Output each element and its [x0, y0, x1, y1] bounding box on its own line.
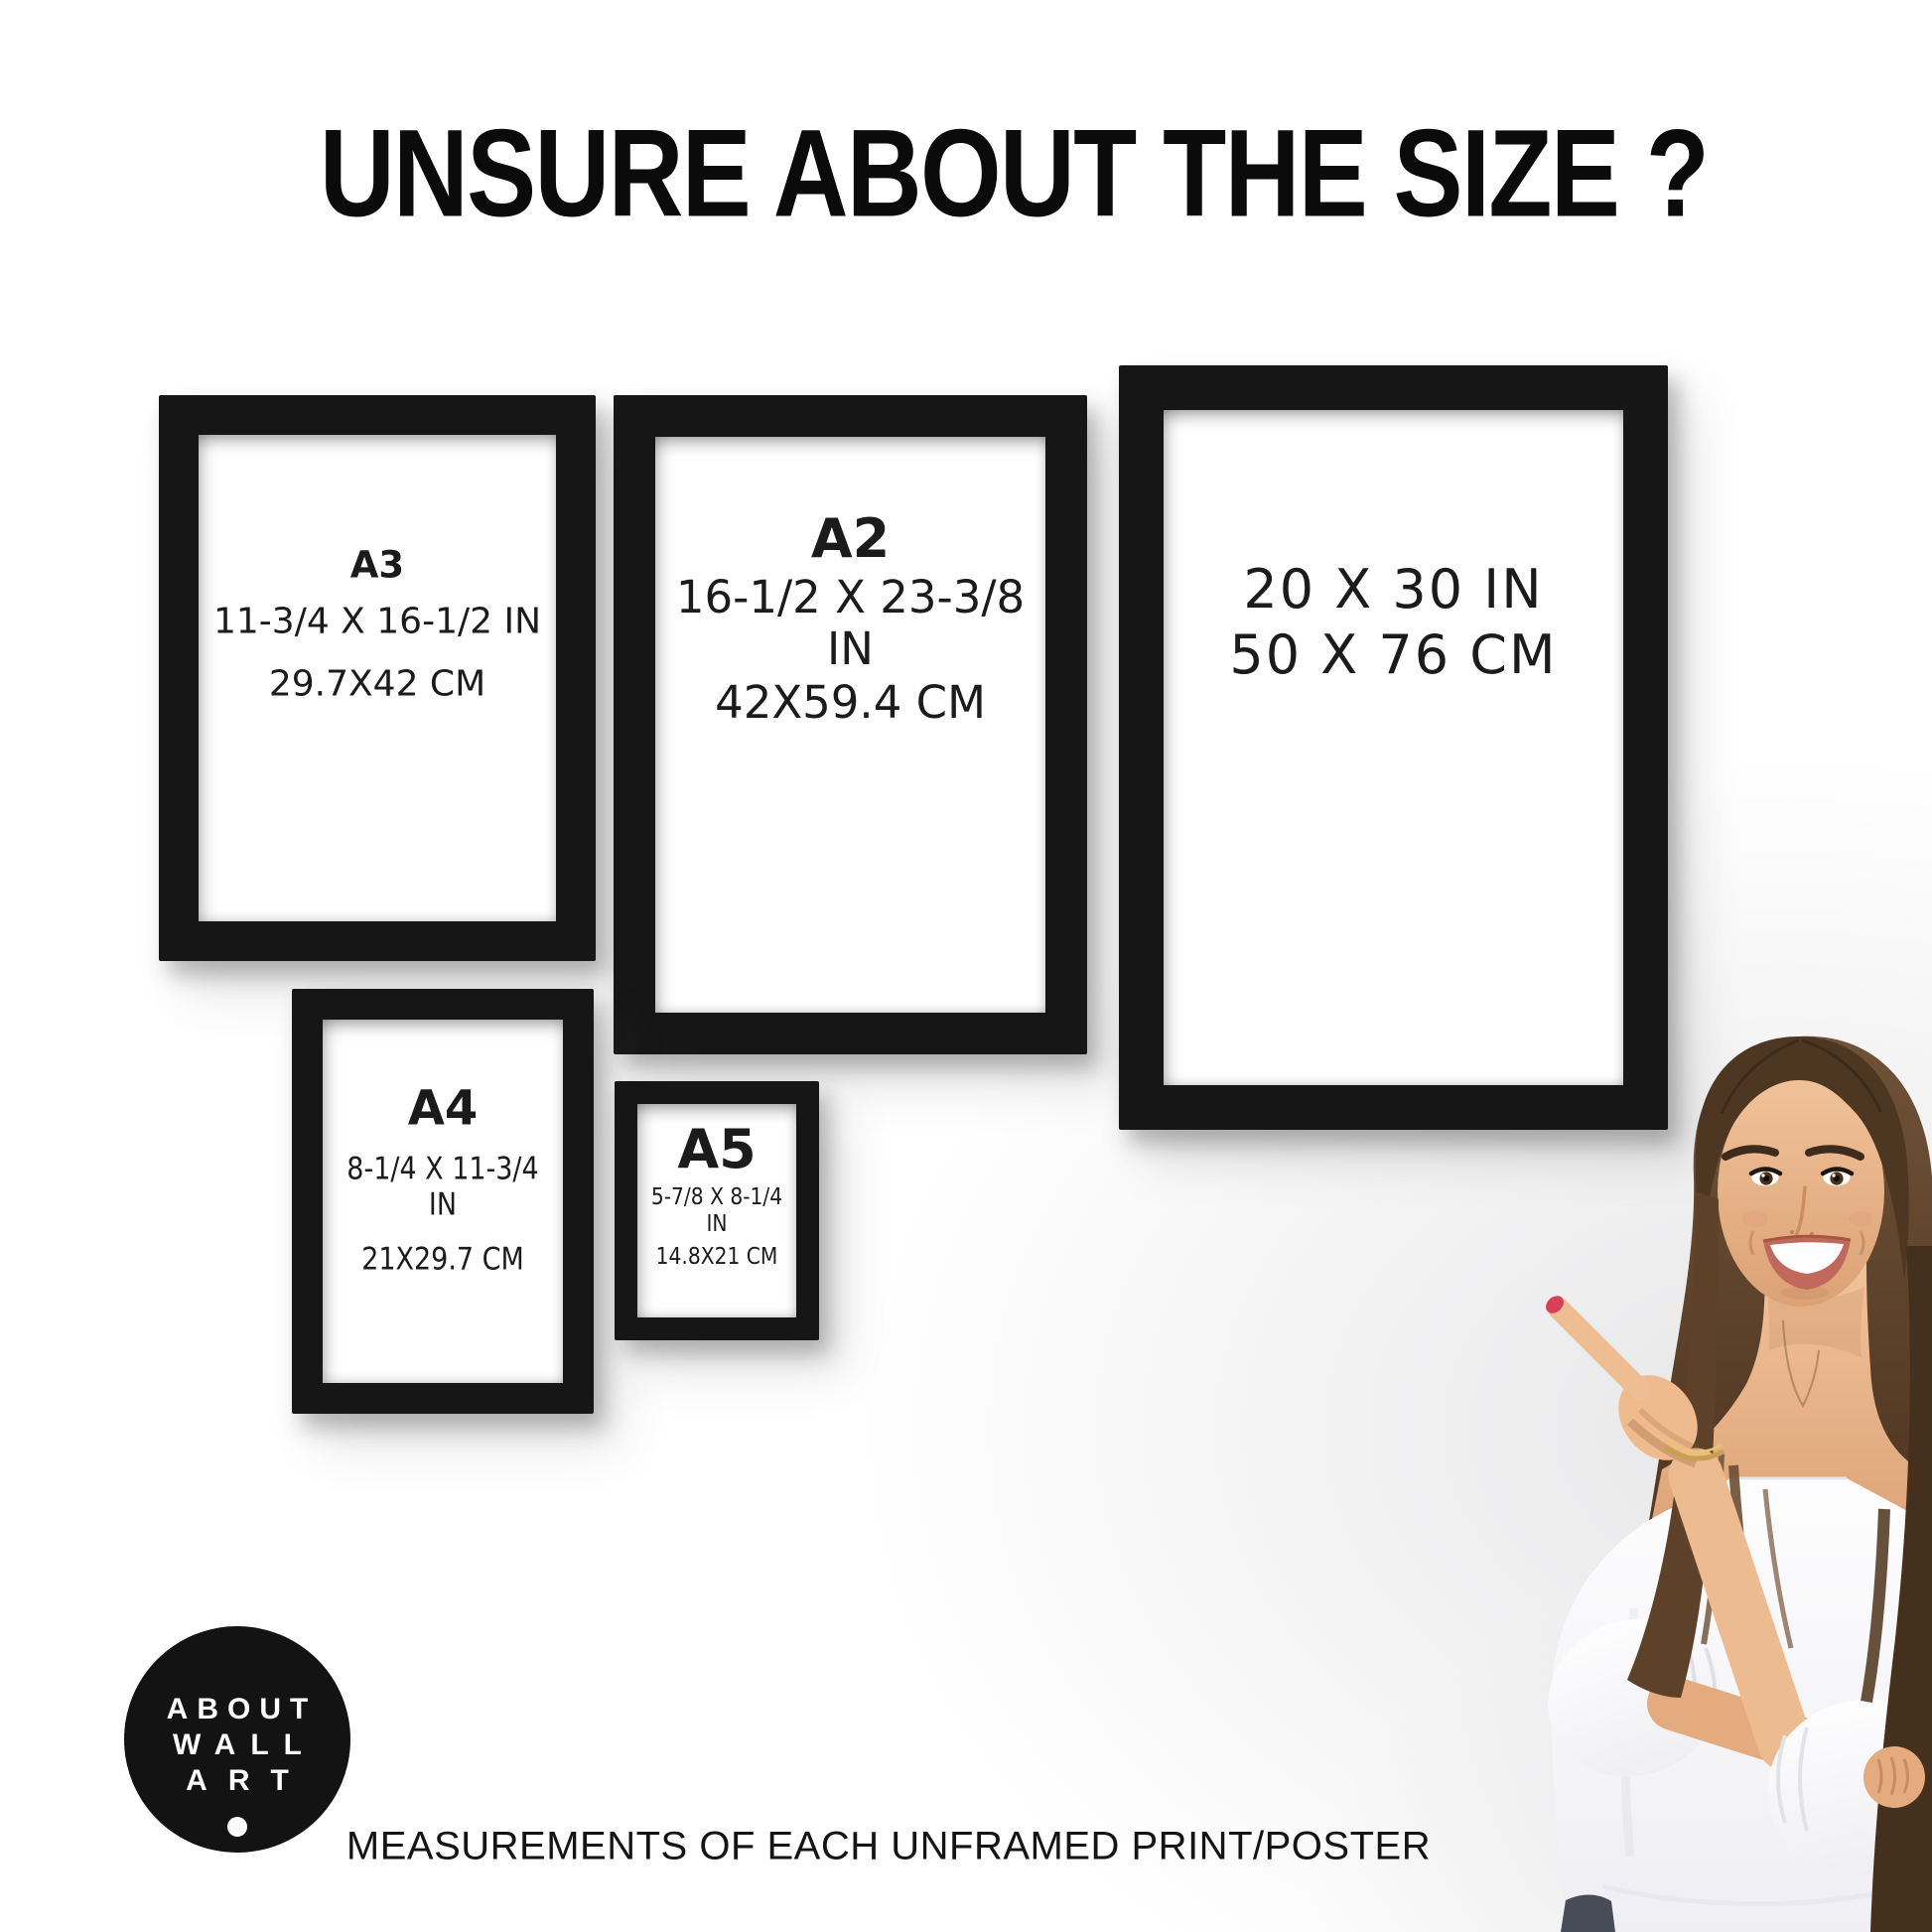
frame-a3-size-text: A3 11-3/4 X 16-1/2 IN 29.7X42 CM [199, 544, 556, 704]
brand-logo-text: ABOUT WALL ART [124, 1692, 350, 1799]
frame-a3-cm: 29.7X42 CM [199, 663, 556, 704]
frame-a2-inches: 16-1/2 X 23-3/8 IN [655, 572, 1045, 675]
brand-logo-line-2: WALL [124, 1727, 350, 1763]
woman-jeans [1561, 1894, 1615, 1932]
frame-a5-cm: 14.8X21 CM [647, 1244, 787, 1270]
frame-20x30-size-text: 20 X 30 IN 50 X 76 CM [1164, 559, 1623, 686]
woman-gripping-hand [1863, 1746, 1925, 1808]
frame-20x30-inches: 20 X 30 IN [1164, 559, 1623, 621]
frame-a5-label: A5 [637, 1119, 796, 1180]
frame-a3-mat: A3 11-3/4 X 16-1/2 IN 29.7X42 CM [199, 435, 556, 921]
woman-index-finger [1559, 1309, 1640, 1390]
frame-20x30-mat: 20 X 30 IN 50 X 76 CM [1164, 410, 1623, 1085]
frame-a4: A4 8-1/4 X 11-3/4 IN 21X29.7 CM [292, 989, 594, 1414]
frame-a5-inches: 5-7/8 X 8-1/4 IN [647, 1184, 787, 1237]
frame-a2: A2 16-1/2 X 23-3/8 IN 42X59.4 CM [614, 395, 1087, 1054]
frame-a3-inches: 11-3/4 X 16-1/2 IN [199, 601, 556, 641]
frame-a4-cm: 21X29.7 CM [339, 1242, 548, 1278]
brand-logo-line-1: ABOUT [124, 1692, 350, 1727]
size-guide-poster: UNSURE ABOUT THE SIZE ? A3 11-3/4 X 16-1… [0, 0, 1932, 1932]
frame-a4-inches: 8-1/4 X 11-3/4 IN [339, 1153, 548, 1223]
frame-a5-mat: A5 5-7/8 X 8-1/4 IN 14.8X21 CM [637, 1104, 796, 1317]
frame-a5: A5 5-7/8 X 8-1/4 IN 14.8X21 CM [615, 1081, 819, 1340]
page-title: UNSURE ABOUT THE SIZE ? [320, 103, 1708, 245]
frame-a2-cm: 42X59.4 CM [655, 677, 1045, 729]
brand-logo-line-3: ART [124, 1763, 350, 1799]
frame-a2-label: A2 [655, 508, 1045, 570]
frame-a5-size-text: A5 5-7/8 X 8-1/4 IN 14.8X21 CM [637, 1119, 796, 1270]
frame-a4-mat: A4 8-1/4 X 11-3/4 IN 21X29.7 CM [323, 1020, 563, 1383]
brand-logo: ABOUT WALL ART [124, 1626, 350, 1853]
frame-a4-size-text: A4 8-1/4 X 11-3/4 IN 21X29.7 CM [323, 1081, 563, 1277]
footer-caption: MEASUREMENTS OF EACH UNFRAMED PRINT/POST… [346, 1825, 1431, 1869]
frame-a2-mat: A2 16-1/2 X 23-3/8 IN 42X59.4 CM [655, 437, 1045, 1013]
frame-a3: A3 11-3/4 X 16-1/2 IN 29.7X42 CM [159, 395, 596, 961]
woman-photo [1436, 993, 1932, 1932]
frame-a4-label: A4 [323, 1081, 563, 1136]
frame-20x30-cm: 50 X 76 CM [1164, 624, 1623, 686]
frame-a2-size-text: A2 16-1/2 X 23-3/8 IN 42X59.4 CM [655, 508, 1045, 729]
frame-a3-label: A3 [199, 544, 556, 587]
brand-logo-dot-icon [227, 1817, 247, 1837]
